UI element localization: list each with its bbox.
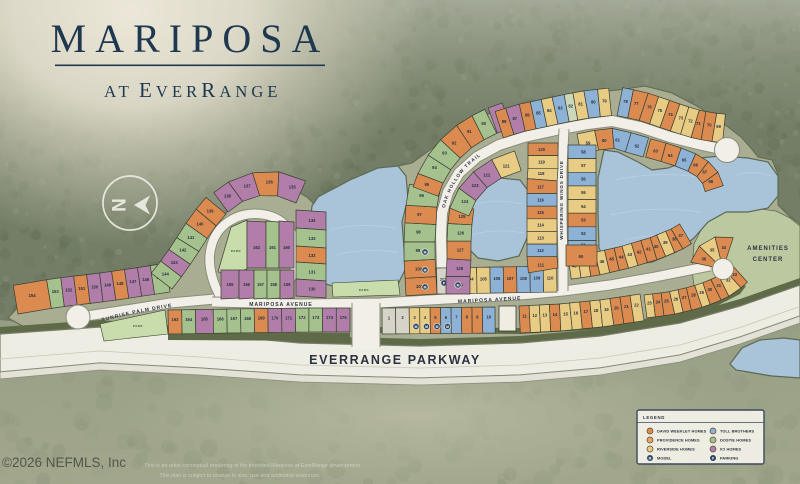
svg-text:115: 115	[537, 210, 544, 215]
svg-text:50: 50	[579, 254, 584, 259]
svg-text:MODEL: MODEL	[657, 456, 672, 461]
svg-text:WHISPERING WINGS DRIVE: WHISPERING WINGS DRIVE	[559, 160, 564, 239]
svg-text:97: 97	[417, 212, 422, 217]
svg-text:TOLL BROTHERS: TOLL BROTHERS	[720, 429, 755, 434]
svg-text:148: 148	[117, 281, 125, 286]
svg-text:92: 92	[452, 140, 457, 145]
svg-text:90: 90	[481, 121, 486, 126]
svg-text:162: 162	[253, 245, 261, 250]
svg-text:128: 128	[456, 266, 464, 271]
svg-text:105: 105	[480, 276, 488, 281]
svg-text:169: 169	[258, 316, 266, 321]
svg-text:30: 30	[707, 287, 712, 292]
svg-text:PARK: PARK	[359, 288, 370, 292]
svg-text:68: 68	[708, 179, 713, 184]
svg-text:66: 66	[693, 163, 698, 168]
svg-text:58: 58	[581, 149, 586, 154]
svg-text:74: 74	[668, 112, 673, 117]
svg-text:138: 138	[224, 194, 232, 199]
svg-text:135: 135	[289, 184, 297, 189]
svg-text:14: 14	[553, 312, 558, 317]
svg-text:41: 41	[646, 247, 651, 252]
svg-text:M: M	[424, 269, 427, 273]
svg-text:83: 83	[558, 106, 563, 111]
svg-text:137: 137	[244, 183, 252, 188]
svg-text:29: 29	[699, 290, 704, 295]
svg-text:65: 65	[682, 158, 687, 163]
svg-text:165: 165	[201, 317, 209, 322]
svg-text:40: 40	[654, 244, 659, 249]
svg-text:10: 10	[486, 314, 491, 319]
svg-text:AMENITIES: AMENITIES	[747, 246, 789, 252]
svg-text:108: 108	[520, 276, 528, 281]
svg-text:PARK: PARK	[231, 249, 242, 253]
svg-text:72: 72	[688, 118, 693, 123]
svg-text:75: 75	[657, 108, 662, 113]
svg-text:172: 172	[299, 315, 307, 320]
svg-text:117: 117	[537, 185, 544, 190]
svg-text:MARIPOSA AVENUE: MARIPOSA AVENUE	[249, 302, 312, 308]
svg-text:175: 175	[340, 315, 348, 320]
svg-text:78: 78	[623, 99, 628, 104]
svg-text:80: 80	[591, 100, 596, 105]
svg-text:118: 118	[538, 171, 545, 176]
svg-text:110: 110	[547, 275, 554, 280]
svg-text:127: 127	[457, 247, 465, 252]
svg-text:166: 166	[217, 316, 225, 321]
svg-text:M: M	[415, 325, 418, 329]
svg-text:60: 60	[602, 138, 607, 143]
svg-text:19: 19	[604, 307, 609, 312]
svg-text:24: 24	[656, 300, 661, 305]
svg-text:M: M	[436, 325, 439, 329]
svg-text:100: 100	[415, 266, 423, 271]
svg-text:39: 39	[663, 240, 668, 245]
svg-text:17: 17	[583, 309, 588, 314]
svg-text:98: 98	[416, 230, 421, 235]
svg-text:164: 164	[185, 317, 193, 322]
svg-text:84: 84	[547, 108, 552, 113]
svg-text:85: 85	[536, 110, 541, 115]
svg-text:64: 64	[668, 153, 673, 158]
svg-text:121: 121	[503, 163, 511, 168]
svg-text:45: 45	[609, 257, 614, 262]
svg-text:155: 155	[227, 282, 235, 287]
svg-text:M: M	[424, 251, 427, 255]
svg-text:173: 173	[312, 315, 320, 320]
svg-text:112: 112	[537, 248, 544, 253]
svg-text:23: 23	[647, 301, 652, 306]
svg-text:44: 44	[619, 254, 624, 259]
svg-text:126: 126	[457, 231, 465, 236]
svg-text:36: 36	[701, 256, 706, 261]
svg-text:106: 106	[493, 276, 501, 281]
svg-text:PARK: PARK	[133, 324, 144, 328]
svg-text:PARKING: PARKING	[720, 456, 738, 461]
svg-text:125: 125	[459, 214, 467, 219]
svg-text:43: 43	[627, 252, 632, 257]
svg-text:This plan is subject to change: This plan is subject to change in size, …	[159, 473, 320, 479]
svg-text:160: 160	[283, 245, 291, 250]
svg-text:122: 122	[483, 173, 491, 178]
svg-text:124: 124	[461, 199, 469, 204]
svg-text:M: M	[425, 325, 428, 329]
svg-text:149: 149	[104, 283, 112, 288]
svg-text:134: 134	[309, 218, 317, 223]
svg-text:DAVID WEEKLEY HOMES: DAVID WEEKLEY HOMES	[657, 429, 707, 434]
svg-text:159: 159	[284, 282, 292, 287]
svg-text:15: 15	[563, 311, 568, 316]
svg-text:86: 86	[525, 113, 530, 118]
svg-text:21: 21	[624, 304, 629, 309]
svg-text:119: 119	[538, 160, 545, 165]
svg-text:PROVIDENCE HOMES: PROVIDENCE HOMES	[657, 438, 700, 443]
svg-text:63: 63	[653, 149, 658, 154]
svg-text:69: 69	[716, 124, 721, 129]
svg-text:12: 12	[532, 313, 537, 318]
svg-text:M: M	[649, 456, 652, 460]
svg-text:120: 120	[538, 147, 546, 152]
svg-text:95: 95	[424, 182, 429, 187]
svg-text:31: 31	[716, 283, 721, 288]
svg-text:143: 143	[171, 260, 179, 265]
svg-text:EVERRANGE PARKWAY: EVERRANGE PARKWAY	[309, 353, 481, 367]
svg-text:139: 139	[207, 208, 215, 213]
svg-text:CENTER: CENTER	[753, 257, 784, 263]
svg-text:156: 156	[243, 282, 251, 287]
svg-text:87: 87	[512, 116, 517, 121]
svg-text:55: 55	[581, 190, 586, 195]
svg-text:133: 133	[309, 236, 317, 241]
svg-text:61: 61	[615, 138, 620, 143]
svg-text:142: 142	[179, 247, 187, 252]
svg-text:25: 25	[664, 299, 669, 304]
svg-text:71: 71	[696, 121, 701, 126]
svg-text:111: 111	[538, 263, 545, 268]
svg-text:57: 57	[581, 163, 586, 168]
svg-text:20: 20	[614, 305, 619, 310]
svg-text:MARIPOSA: MARIPOSA	[51, 16, 330, 61]
svg-text:18: 18	[594, 308, 599, 313]
svg-text:DOSTIE HOMES: DOSTIE HOMES	[720, 438, 751, 443]
svg-text:168: 168	[244, 316, 252, 321]
svg-text:46: 46	[600, 259, 605, 264]
svg-text:54: 54	[581, 204, 586, 209]
svg-text:73: 73	[678, 116, 683, 121]
svg-text:11: 11	[522, 314, 527, 319]
svg-text:154: 154	[29, 293, 37, 298]
svg-text:147: 147	[129, 279, 137, 284]
svg-text:94: 94	[432, 165, 437, 170]
svg-text:M: M	[446, 325, 449, 329]
svg-text:13: 13	[542, 313, 547, 318]
svg-text:81: 81	[578, 102, 583, 107]
svg-text:©2026 NEFMLS, Inc: ©2026 NEFMLS, Inc	[2, 455, 126, 470]
svg-text:27: 27	[682, 295, 687, 300]
svg-text:114: 114	[537, 223, 544, 228]
svg-text:M: M	[457, 284, 460, 288]
svg-text:ICI HOMES: ICI HOMES	[720, 447, 742, 452]
svg-text:96: 96	[419, 193, 424, 198]
svg-text:161: 161	[269, 245, 277, 250]
svg-text:62: 62	[635, 143, 640, 148]
svg-text:N: N	[110, 198, 131, 212]
svg-text:53: 53	[581, 218, 586, 223]
svg-text:67: 67	[702, 169, 707, 174]
svg-text:113: 113	[537, 235, 544, 240]
svg-text:107: 107	[507, 276, 515, 281]
svg-text:91: 91	[467, 129, 472, 134]
svg-text:56: 56	[581, 177, 586, 182]
svg-text:79: 79	[602, 99, 607, 104]
svg-text:146: 146	[142, 277, 150, 282]
svg-text:This is an artist conceptual r: This is an artist conceptual rendering o…	[144, 463, 361, 469]
svg-text:152: 152	[65, 287, 73, 292]
svg-text:116: 116	[537, 197, 544, 202]
svg-text:52: 52	[581, 231, 586, 236]
svg-text:151: 151	[78, 286, 86, 291]
svg-text:34: 34	[721, 245, 726, 250]
svg-text:37: 37	[678, 233, 683, 238]
svg-text:26: 26	[673, 297, 678, 302]
svg-text:16: 16	[573, 310, 578, 315]
svg-text:82: 82	[568, 104, 573, 109]
svg-text:144: 144	[162, 272, 170, 277]
svg-text:130: 130	[309, 287, 317, 292]
svg-text:77: 77	[634, 101, 639, 106]
svg-text:99: 99	[416, 248, 421, 253]
svg-text:132: 132	[309, 253, 317, 258]
svg-text:167: 167	[230, 316, 238, 321]
svg-text:70: 70	[707, 123, 712, 128]
svg-text:131: 131	[309, 270, 317, 275]
svg-text:RIVERSIDE HOMES: RIVERSIDE HOMES	[657, 447, 695, 452]
svg-text:109: 109	[533, 276, 541, 281]
svg-text:28: 28	[691, 293, 696, 298]
svg-text:171: 171	[285, 315, 293, 320]
svg-text:76: 76	[647, 105, 652, 110]
svg-text:170: 170	[271, 316, 279, 321]
svg-text:ATEVERRANGE: ATEVERRANGE	[104, 78, 282, 102]
svg-text:141: 141	[187, 235, 195, 240]
svg-text:35: 35	[710, 248, 715, 253]
svg-text:22: 22	[634, 302, 639, 307]
svg-text:153: 153	[52, 289, 60, 294]
svg-text:174: 174	[326, 315, 334, 320]
svg-text:93: 93	[442, 151, 447, 156]
svg-text:140: 140	[197, 221, 205, 226]
svg-text:123: 123	[472, 183, 480, 188]
svg-text:LEGEND: LEGEND	[643, 415, 665, 420]
svg-text:M: M	[424, 286, 427, 290]
svg-text:42: 42	[637, 249, 642, 254]
svg-text:136: 136	[266, 180, 274, 185]
svg-text:163: 163	[172, 317, 180, 322]
svg-text:150: 150	[91, 284, 99, 289]
svg-text:158: 158	[270, 282, 278, 287]
svg-text:88: 88	[502, 119, 507, 124]
svg-text:157: 157	[257, 282, 265, 287]
